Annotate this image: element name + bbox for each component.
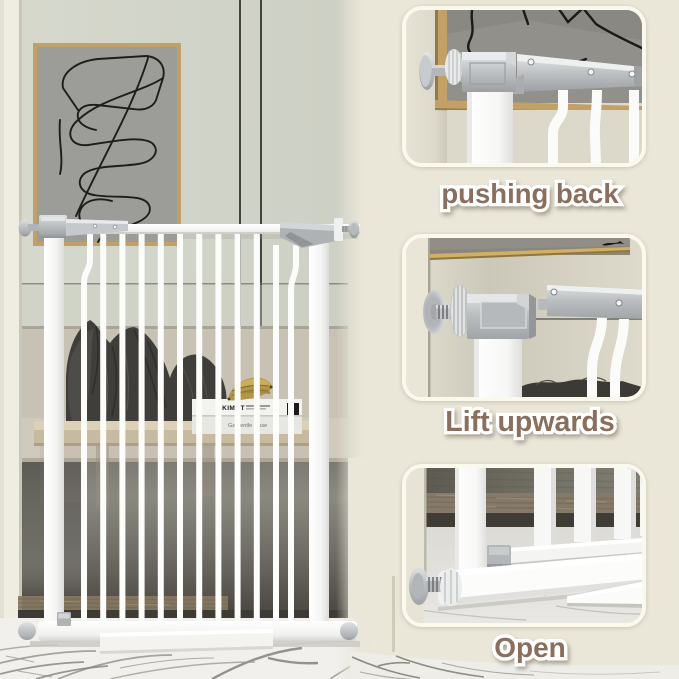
svg-text:Gargentle Muse: Gargentle Muse [228,423,267,429]
svg-text:pushing back: pushing back [441,178,619,209]
svg-text:Lift upwards: Lift upwards [445,406,614,438]
svg-text:Open: Open [494,632,566,663]
